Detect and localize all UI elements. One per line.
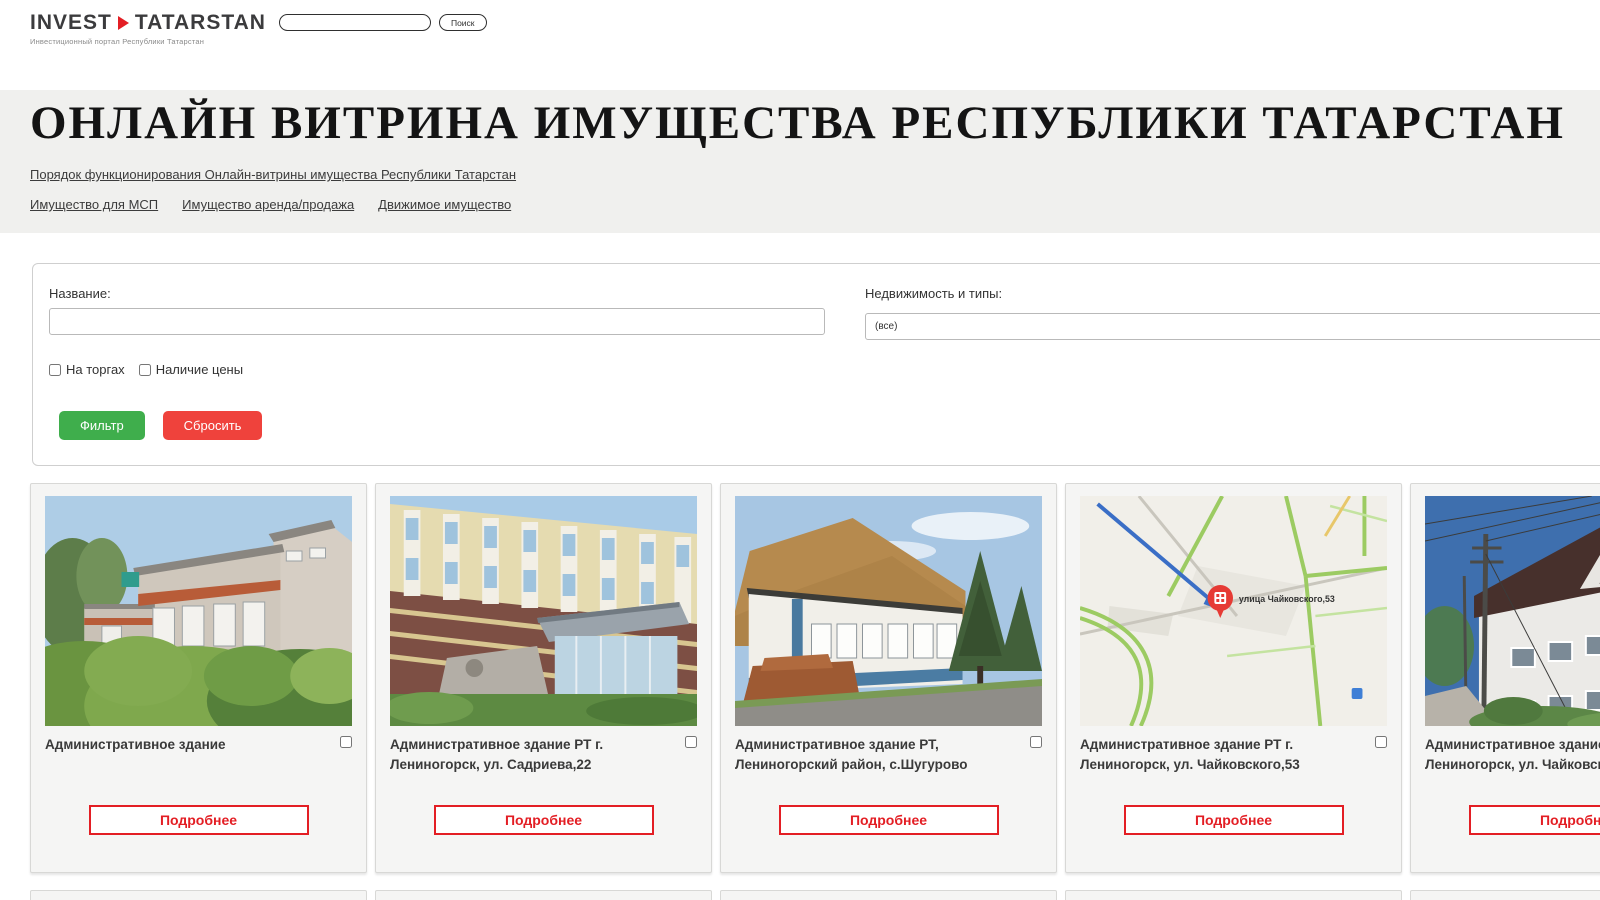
search-input[interactable] bbox=[279, 14, 431, 31]
property-photo-building-hill bbox=[735, 496, 1042, 726]
property-compare-checkbox[interactable] bbox=[1375, 736, 1387, 748]
procedure-link[interactable]: Порядок функционирования Онлайн-витрины … bbox=[30, 167, 516, 182]
property-compare-checkbox[interactable] bbox=[685, 736, 697, 748]
property-photo-white-building bbox=[1425, 496, 1600, 726]
card-stub bbox=[30, 890, 367, 900]
logo-invest-text: INVEST bbox=[30, 11, 112, 35]
property-title: Административное здание РТ г. Лениногорс… bbox=[1080, 735, 1367, 774]
has-price-checkbox-item: Наличие цены bbox=[139, 362, 243, 377]
property-title: Административное здание РТ г. Лениногорс… bbox=[390, 735, 677, 774]
name-filter-label: Название: bbox=[49, 286, 111, 301]
logo-tagline: Инвестиционный портал Республики Татарст… bbox=[30, 37, 266, 46]
property-card: Административное здание РТ г. Лениногорс… bbox=[375, 483, 712, 873]
filter-buttons: Фильтр Сбросить bbox=[59, 411, 262, 440]
property-compare-checkbox[interactable] bbox=[340, 736, 352, 748]
next-cards-row bbox=[30, 890, 1600, 900]
page-title: ОНЛАЙН ВИТРИНА ИМУЩЕСТВА РЕСПУБЛИКИ ТАТА… bbox=[30, 96, 1600, 150]
nav-link-rent-sale[interactable]: Имущество аренда/продажа bbox=[182, 197, 354, 212]
on-auction-checkbox[interactable] bbox=[49, 364, 61, 376]
on-auction-checkbox-item: На торгах bbox=[49, 362, 125, 377]
property-compare-checkbox[interactable] bbox=[1030, 736, 1042, 748]
site-logo[interactable]: INVEST TATARSTAN Инвестиционный портал Р… bbox=[30, 11, 266, 46]
name-filter-input[interactable] bbox=[49, 308, 825, 335]
hero-band: ОНЛАЙН ВИТРИНА ИМУЩЕСТВА РЕСПУБЛИКИ ТАТА… bbox=[0, 90, 1600, 233]
search-button[interactable]: Поиск bbox=[439, 14, 487, 31]
logo-tatarstan-text: TATARSTAN bbox=[135, 11, 266, 35]
property-map: улица Чайковского,53 bbox=[1080, 496, 1387, 726]
nav-link-movable[interactable]: Движимое имущество bbox=[378, 197, 511, 212]
map-address-label: улица Чайковского,53 bbox=[1239, 594, 1335, 604]
details-button[interactable]: Подробнее bbox=[1469, 805, 1600, 835]
property-card: Административное здание РТ г. Лениногорс… bbox=[1410, 483, 1600, 873]
on-auction-label: На торгах bbox=[66, 362, 125, 377]
has-price-label: Наличие цены bbox=[156, 362, 243, 377]
filter-reset-button[interactable]: Сбросить bbox=[163, 411, 263, 440]
card-stub bbox=[375, 890, 712, 900]
nav-link-msp[interactable]: Имущество для МСП bbox=[30, 197, 158, 212]
property-photo-multistory-building bbox=[390, 496, 697, 726]
card-stub bbox=[1410, 890, 1600, 900]
type-filter-label: Недвижимость и типы: bbox=[865, 286, 1002, 301]
filter-apply-button[interactable]: Фильтр bbox=[59, 411, 145, 440]
has-price-checkbox[interactable] bbox=[139, 364, 151, 376]
card-stub bbox=[720, 890, 1057, 900]
property-type-select[interactable]: (все) bbox=[865, 313, 1600, 340]
details-button[interactable]: Подробнее bbox=[434, 805, 654, 835]
property-card: Административное здание Подробнее bbox=[30, 483, 367, 873]
property-cards-row: Административное здание Подробнее bbox=[30, 483, 1600, 873]
property-title: Административное здание РТ, Лениногорски… bbox=[735, 735, 1022, 774]
details-button[interactable]: Подробнее bbox=[779, 805, 999, 835]
property-card: Административное здание РТ, Лениногорски… bbox=[720, 483, 1057, 873]
property-type-selected-value: (все) bbox=[875, 321, 897, 332]
filter-checkbox-row: На торгах Наличие цены bbox=[49, 362, 243, 377]
header-search: Поиск bbox=[279, 14, 487, 31]
property-card: улица Чайковского,53 Административное зд… bbox=[1065, 483, 1402, 873]
card-stub bbox=[1065, 890, 1402, 900]
property-photo-overgrown-building bbox=[45, 496, 352, 726]
details-button[interactable]: Подробнее bbox=[1124, 805, 1344, 835]
property-title: Административное здание bbox=[45, 735, 226, 755]
hero-nav: Имущество для МСП Имущество аренда/прода… bbox=[30, 197, 1600, 212]
page-header: INVEST TATARSTAN Инвестиционный портал Р… bbox=[0, 0, 1600, 90]
logo-arrow-icon bbox=[118, 16, 129, 30]
details-button[interactable]: Подробнее bbox=[89, 805, 309, 835]
property-title: Административное здание РТ г. Лениногорс… bbox=[1425, 735, 1600, 774]
filter-panel: Название: Недвижимость и типы: (все) На … bbox=[32, 263, 1600, 466]
